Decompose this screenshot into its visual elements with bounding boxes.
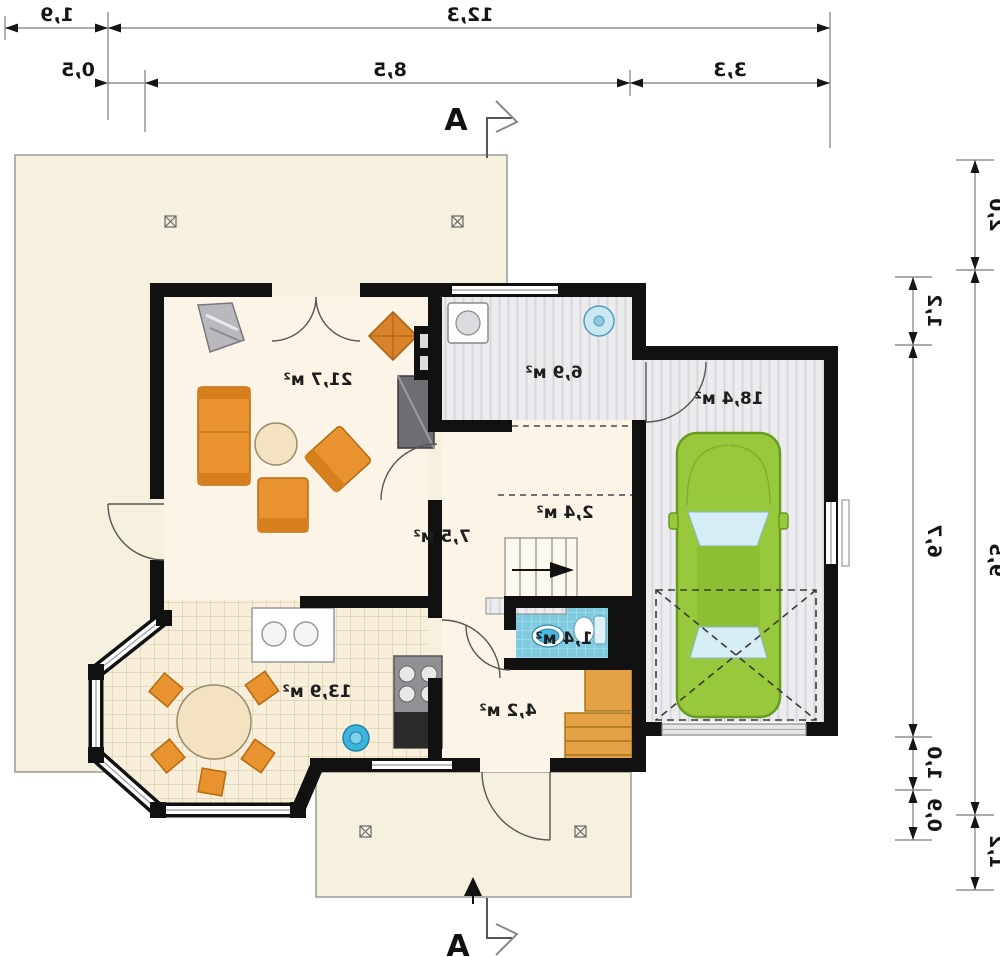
dim-right-inner-mid: 6,7 bbox=[923, 524, 945, 558]
section-marker-bottom-label: А bbox=[446, 929, 470, 957]
dim-right-inner-low: 1,0 bbox=[923, 746, 945, 780]
room-label-kitchen: 13,9 м² bbox=[282, 682, 351, 702]
garage-door bbox=[662, 724, 806, 735]
washing-machine bbox=[448, 303, 488, 343]
corridor-floor bbox=[632, 360, 646, 422]
room-label-hall: 7,5 м² bbox=[413, 527, 470, 547]
section-marker-top-label: А bbox=[444, 103, 468, 138]
car bbox=[669, 433, 788, 717]
window-top bbox=[452, 283, 558, 297]
room-label-utility: 6,9 м² bbox=[525, 363, 582, 383]
dim-seg-mid: 8,5 bbox=[373, 59, 407, 81]
section-marker-bottom: А bbox=[446, 898, 517, 957]
dim-seg-left: 0,5 bbox=[61, 59, 95, 81]
room-label-living: 21,7 м² bbox=[283, 370, 352, 390]
dim-right-outer-mid: 9,5 bbox=[985, 543, 1000, 577]
round-sink bbox=[343, 725, 369, 751]
dim-right-outer-bottom: 1,2 bbox=[985, 835, 1000, 869]
window-bottom bbox=[372, 758, 452, 772]
room-label-wc: 1,4 м² bbox=[535, 629, 592, 649]
dim-terrace-width: 1,9 bbox=[40, 4, 74, 26]
room-label-wardrobe: 2,4 м² bbox=[536, 503, 593, 523]
sofa bbox=[198, 387, 250, 485]
room-label-garage: 18,4 м² bbox=[694, 389, 763, 409]
room-label-storage: 4,2 м² bbox=[479, 701, 536, 721]
armchair bbox=[258, 478, 308, 532]
dim-right-inner-bottom: 0,9 bbox=[923, 798, 945, 832]
kitchen-sink-counter bbox=[252, 608, 334, 662]
coffee-table bbox=[255, 423, 297, 465]
water-heater bbox=[584, 306, 614, 336]
floor-plan-drawing: А А bbox=[0, 0, 1000, 957]
dim-right-inner-top: 1,2 bbox=[923, 294, 945, 328]
dim-total-width: 12,3 bbox=[447, 4, 494, 26]
dim-seg-right: 3,3 bbox=[713, 59, 747, 81]
dim-right-outer-top: 2,0 bbox=[985, 198, 1000, 232]
dining-table bbox=[177, 685, 251, 759]
section-marker-top: А bbox=[444, 101, 517, 158]
floor-plan-canvas: А А bbox=[0, 0, 1000, 957]
